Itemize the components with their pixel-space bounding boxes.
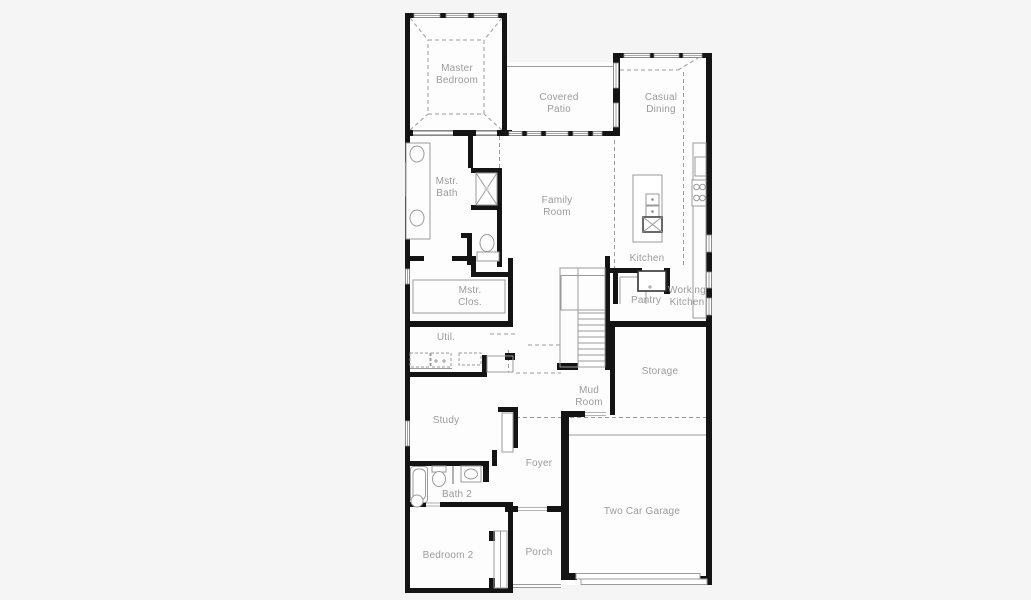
room-label-porch: Porch <box>525 547 552 559</box>
room-label-working-kitchen: Working Kitchen <box>668 285 706 309</box>
sink-icon <box>410 210 424 226</box>
toilet-icon <box>432 466 446 487</box>
kitchen-island <box>633 175 662 242</box>
room-label-covered-patio: Covered Patio <box>539 92 578 116</box>
garage-door <box>576 574 707 585</box>
room-label-family-room: Family Room <box>542 195 573 219</box>
room-label-storage: Storage <box>642 366 678 378</box>
room-label-bath-2: Bath 2 <box>442 489 472 501</box>
room-label-bedroom-2: Bedroom 2 <box>423 550 474 562</box>
cooktop-icon <box>692 180 706 206</box>
room-label-casual-dining: Casual Dining <box>645 92 677 116</box>
room-label-pantry: Pantry <box>631 295 661 307</box>
room-label-foyer: Foyer <box>526 458 553 470</box>
room-label-util: Util. <box>437 332 455 344</box>
floor-plan-canvas: Master Bedroom Covered Patio Casual Dini… <box>0 0 1031 600</box>
sink-icon <box>410 146 424 162</box>
floor-plan-drawing <box>0 0 1031 600</box>
sink-icon <box>465 469 478 479</box>
dishwasher-icon <box>643 217 662 232</box>
room-label-two-car-garage: Two Car Garage <box>604 506 680 518</box>
front-door-leaf <box>502 413 513 452</box>
refrigerator-icon <box>638 271 666 291</box>
room-label-mstr-clos: Mstr. Clos. <box>458 285 482 309</box>
room-label-kitchen: Kitchen <box>630 253 665 265</box>
shower-icon <box>476 173 497 205</box>
room-label-master-bedroom: Master Bedroom <box>436 63 478 87</box>
room-label-mstr-bath: Mstr. Bath <box>436 176 459 200</box>
room-label-study: Study <box>433 415 460 427</box>
room-label-mud-room: Mud Room <box>575 385 602 409</box>
